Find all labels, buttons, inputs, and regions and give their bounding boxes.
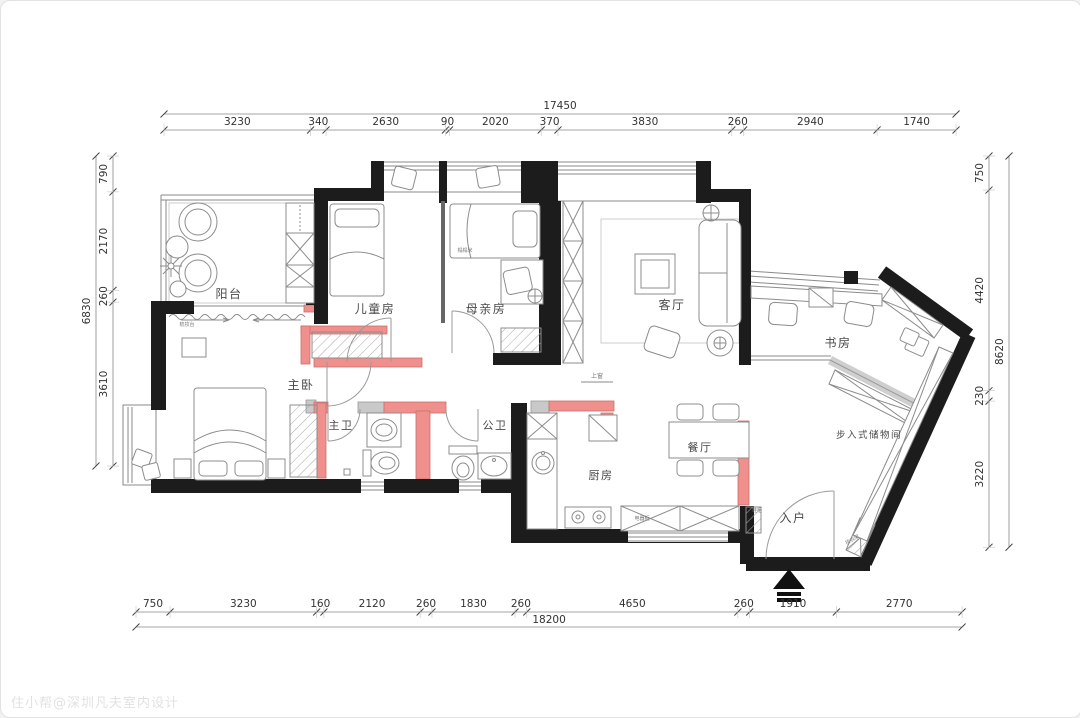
dim-total-label: 8620 (994, 338, 1006, 365)
dim-label: 790 (98, 164, 110, 184)
bay-chair-icon (475, 165, 500, 189)
bay-window-living (556, 162, 698, 201)
dim-label: 4420 (974, 277, 986, 304)
pot-icon (170, 281, 186, 297)
nightstand-icon (268, 459, 285, 478)
floor-plan-canvas: 3230340263090202037038302602940174017450… (0, 0, 1080, 718)
curtain-line (169, 315, 305, 323)
room-label-balcony: 阳台 (215, 286, 242, 301)
furniture (1, 1, 953, 557)
dim-label: 3830 (632, 116, 659, 128)
nightstand-icon (174, 459, 191, 478)
dim-label: 2630 (372, 116, 399, 128)
dim-label: 3220 (974, 461, 986, 488)
dim-label: 230 (974, 386, 986, 406)
small-label-dressing-table: 梳妆台 (179, 321, 194, 328)
door-mother (452, 311, 494, 353)
desk-chair-icon (768, 302, 797, 326)
dim-label: 260 (728, 116, 748, 128)
dim-label: 3230 (230, 598, 257, 610)
small-label-tatami: 榻榻米 (457, 247, 472, 254)
dim-label: 160 (310, 598, 330, 610)
chair-icon (713, 404, 739, 420)
pillow-icon (199, 461, 227, 476)
desk-chair-icon (503, 266, 533, 295)
small-label-window-above: 上窗 (591, 372, 603, 380)
dim-label: 750 (143, 598, 163, 610)
dim-label: 260 (511, 598, 531, 610)
study-window (749, 271, 880, 280)
room-label-entry: 入户 (779, 510, 806, 525)
dim-label: 340 (308, 116, 328, 128)
dim-label: 750 (974, 163, 986, 183)
closet-hatch (312, 332, 382, 358)
floor-plan: 3230340263090202037038302602940174017450… (1, 1, 1080, 717)
room-label-living-room: 客厅 (658, 297, 685, 312)
dim-label: 2770 (886, 598, 913, 610)
dim-label: 370 (540, 116, 560, 128)
room-label-kids-room: 儿童房 (355, 301, 396, 316)
toilet-icon (363, 450, 399, 476)
wardrobe-hatch (290, 405, 317, 477)
dressing-table-icon (182, 338, 206, 357)
chair-icon (677, 460, 703, 476)
round-table-icon (166, 236, 188, 258)
small-label-appliance-cabinet: 电器柜 (634, 515, 649, 522)
fan-icon (528, 289, 542, 303)
dim-label: 1740 (903, 116, 930, 128)
side-table-icon (707, 330, 733, 356)
room-label-master-bath: 主卫 (329, 419, 354, 432)
pillow-icon (235, 461, 263, 476)
room-label-walkin-storage: 步入式储物间 (836, 429, 902, 441)
dim-label: 2120 (359, 598, 386, 610)
door-master (327, 362, 371, 406)
stove-icon (565, 507, 611, 528)
watermark: 住小帮@深圳凡夫室内设计 (11, 692, 179, 711)
balcony-cabinet (286, 203, 314, 303)
dim-label: 260 (734, 598, 754, 610)
room-label-mother-room: 母亲房 (466, 301, 507, 316)
door-entry (766, 491, 834, 559)
dim-label: 2940 (797, 116, 824, 128)
dim-label: 2020 (482, 116, 509, 128)
dim-total-label: 17450 (543, 100, 576, 112)
dim-label: 2170 (98, 228, 110, 255)
ceiling-fan-icon (703, 205, 719, 221)
dim-label: 90 (441, 116, 454, 128)
dim-chain-bottom: 7503230160212026018302604650260191027701… (133, 598, 966, 631)
dim-label: 4650 (619, 598, 646, 610)
small-label-shoe-cabinet: 鞋柜 (752, 507, 762, 514)
room-label-kitchen: 厨房 (589, 469, 614, 482)
toilet-icon (449, 446, 477, 480)
room-label-public-bath: 公卫 (483, 419, 508, 432)
dining-furniture (621, 404, 749, 531)
tv-cabinet (563, 201, 583, 363)
sofa-icon (699, 220, 741, 326)
dim-label: 1830 (460, 598, 487, 610)
room-label-dining: 餐厅 (688, 440, 713, 454)
desk-chair-icon (843, 301, 874, 328)
chair-icon (713, 460, 739, 476)
drain-icon (344, 469, 350, 475)
door-public-bath (446, 409, 478, 441)
plant-icon (160, 255, 182, 277)
dim-label: 3610 (98, 371, 110, 398)
coffee-table-icon (635, 254, 675, 294)
chair-icon (677, 404, 703, 420)
bay-chair-icon (142, 462, 161, 480)
armchair-icon (643, 325, 681, 360)
dim-label: 260 (98, 286, 110, 306)
kitchen-window (628, 530, 728, 542)
closet-hatch (501, 328, 541, 352)
dim-label: 1910 (780, 598, 807, 610)
dim-total-label: 6830 (81, 298, 93, 325)
room-label-study: 书房 (824, 335, 851, 350)
dim-label: 260 (416, 598, 436, 610)
pillow-icon (335, 209, 379, 227)
dim-total-label: 18200 (532, 614, 565, 626)
pillow-icon (513, 211, 537, 247)
room-label-master-bedroom: 主卧 (287, 378, 314, 392)
dim-chain-right: 750442023032208620 (974, 153, 1013, 551)
dim-label: 3230 (224, 116, 251, 128)
dim-chain-top: 3230340263090202037038302602940174017450 (161, 100, 960, 136)
dim-chain-left: 790217026036106830 (81, 153, 119, 470)
living-room-furniture (563, 201, 741, 363)
kitchen-sink-icon (532, 452, 554, 474)
fridge-icon (589, 415, 617, 441)
public-bath-fixtures (449, 446, 511, 480)
sink-icon (371, 419, 397, 441)
